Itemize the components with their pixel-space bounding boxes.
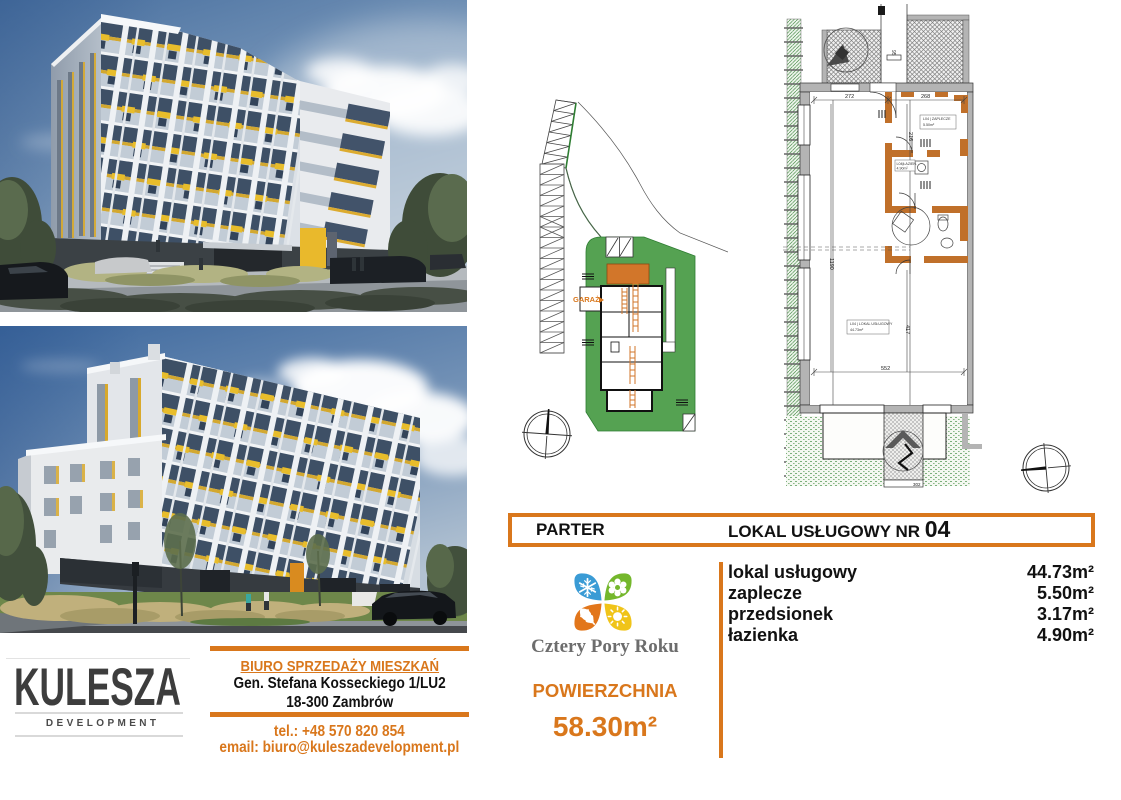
- svg-text:272: 272: [845, 94, 854, 100]
- svg-text:5.50m²: 5.50m²: [923, 123, 935, 127]
- svg-text:552: 552: [881, 366, 890, 372]
- svg-text:216: 216: [907, 132, 913, 141]
- svg-text:1190: 1190: [828, 258, 834, 270]
- svg-text:L04 | LOKAL USŁUGOWY: L04 | LOKAL USŁUGOWY: [850, 322, 893, 326]
- svg-text:GARAŻ: GARAŻ: [573, 295, 600, 304]
- svg-text:44.73m²: 44.73m²: [850, 328, 864, 332]
- svg-text:417: 417: [904, 325, 910, 334]
- svg-text:4.90m²: 4.90m²: [897, 167, 909, 171]
- svg-text:268: 268: [921, 94, 930, 100]
- svg-text:95: 95: [890, 50, 896, 56]
- svg-text:L04|ŁAZIEN.: L04|ŁAZIEN.: [897, 162, 918, 166]
- svg-text:L04 | ZAPLECZE: L04 | ZAPLECZE: [923, 117, 951, 121]
- svg-text:302: 302: [913, 482, 921, 487]
